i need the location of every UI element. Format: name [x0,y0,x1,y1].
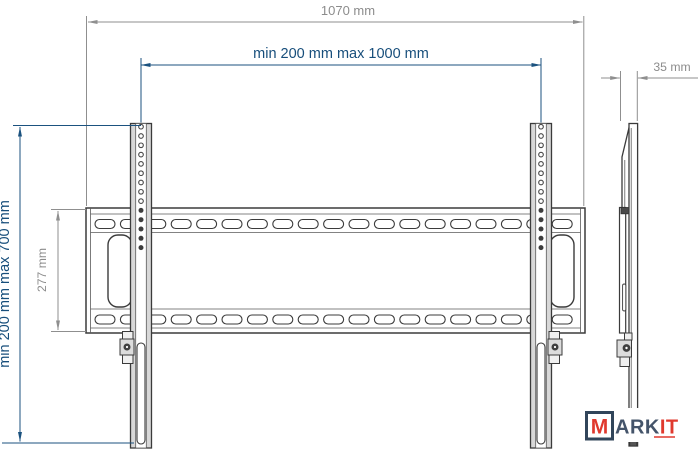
brand-logo: M ARKIT [583,408,679,442]
locking-latch-side [617,333,632,367]
dim-profile-depth: 35 mm [601,60,698,121]
side-view [617,124,638,447]
handle-cutout-right [550,235,574,307]
front-view [86,124,585,449]
wall-plate [86,208,585,333]
dim-vesa-height-label: min 200 mm max 700 mm [0,200,13,368]
logo-m-letter: M [591,416,609,439]
dim-vesa-width: min 200 mm max 1000 mm [141,46,541,123]
dim-overall-width-label: 1070 mm [321,3,375,18]
mount-diagram: 1070 mm min 200 mm max 1000 mm min 200 m… [0,0,700,451]
locking-latch-left [120,332,134,364]
dim-vesa-width-label: min 200 mm max 1000 mm [253,46,429,62]
diagram-page: 1070 mm min 200 mm max 1000 mm min 200 m… [0,0,700,451]
dim-overall-width: 1070 mm [87,3,584,206]
bracket-slot-right [537,343,545,444]
dim-plate-height: 277 mm [35,210,86,332]
logo-wordmark: ARKIT [615,417,679,439]
side-plate-slot [623,284,626,311]
bracket-slot-left [137,343,145,444]
side-wall-plate [620,208,626,334]
dim-profile-depth-label: 35 mm [653,60,690,74]
logo-ark-text: ARK [615,417,660,439]
locking-latch-right [548,332,562,364]
handle-cutout-left [108,235,132,307]
dim-plate-height-label: 277 mm [35,248,49,292]
side-bracket-bar [629,124,638,447]
logo-it-text: IT [660,417,679,439]
